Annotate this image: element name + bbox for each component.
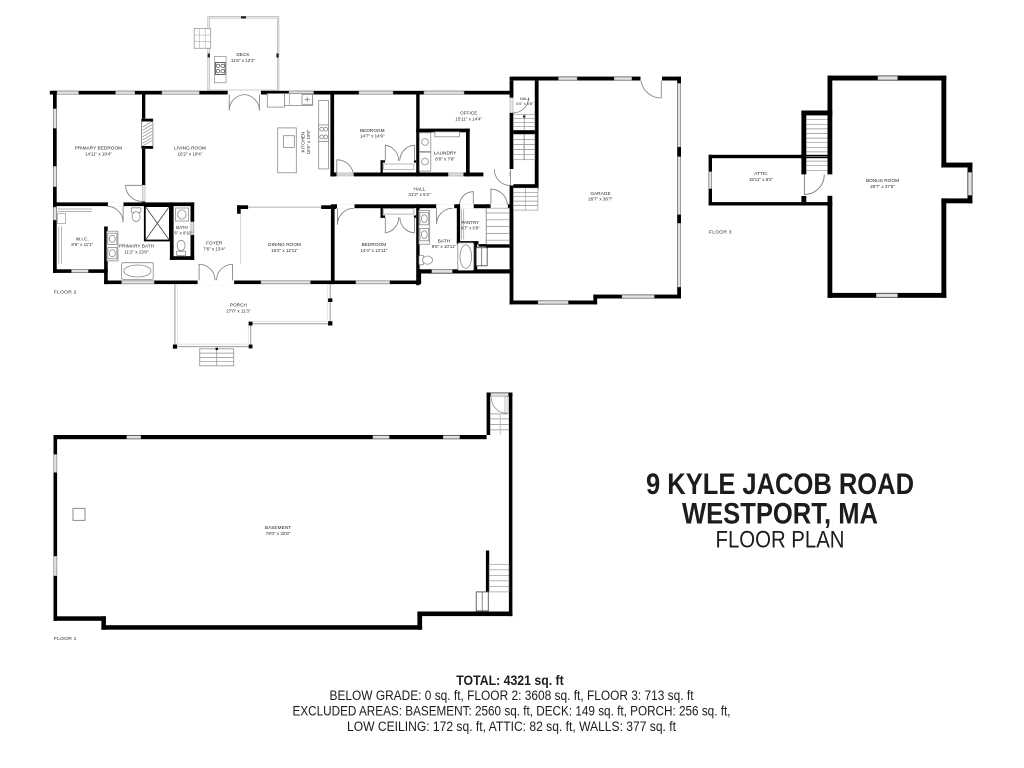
svg-text:14'4" x 12'11": 14'4" x 12'11" (360, 248, 387, 253)
svg-text:TOTAL: 4321 sq. ft: TOTAL: 4321 sq. ft (456, 673, 564, 688)
svg-text:OFFICE: OFFICE (460, 110, 478, 115)
svg-text:LIVING ROOM: LIVING ROOM (174, 146, 206, 151)
svg-text:16'2" x 19'4": 16'2" x 19'4" (178, 152, 203, 157)
svg-text:3'6" x 8'10": 3'6" x 8'10" (171, 230, 193, 235)
svg-text:PORCH: PORCH (230, 303, 247, 308)
svg-text:FLOOR 2: FLOOR 2 (54, 289, 77, 295)
svg-text:14'11" x 19'4": 14'11" x 19'4" (85, 152, 112, 157)
svg-text:PANTRY: PANTRY (461, 220, 479, 225)
svg-text:FLOOR 3: FLOOR 3 (709, 230, 732, 236)
svg-text:BELOW GRADE: 0 sq. ft, FLOOR 2: BELOW GRADE: 0 sq. ft, FLOOR 2: 3608 sq.… (330, 688, 694, 703)
svg-text:28'7" x 37'5": 28'7" x 37'5" (870, 184, 895, 189)
svg-text:FOYER: FOYER (206, 241, 223, 246)
svg-text:LAUNDRY: LAUNDRY (434, 150, 457, 155)
svg-text:11'2" x 13'0": 11'2" x 13'0" (124, 250, 149, 255)
svg-text:7'6" x 13'4": 7'6" x 13'4" (203, 246, 226, 251)
svg-text:BEDROOM: BEDROOM (360, 128, 385, 133)
svg-text:11'6" x 12'2": 11'6" x 12'2" (231, 58, 256, 63)
svg-text:DINING ROOM: DINING ROOM (268, 242, 301, 247)
svg-text:ATTIC: ATTIC (754, 171, 768, 176)
svg-text:FLOOR PLAN: FLOOR PLAN (716, 527, 845, 554)
svg-text:LOW CEILING: 172 sq. ft, ATTIC: LOW CEILING: 172 sq. ft, ATTIC: 82 sq. f… (347, 719, 676, 734)
svg-text:28'7" x 38'7": 28'7" x 38'7" (588, 197, 613, 202)
svg-text:31'2" x 5'2": 31'2" x 5'2" (408, 192, 431, 197)
svg-text:8'6" x 11'1": 8'6" x 11'1" (71, 242, 93, 247)
svg-text:HALL: HALL (414, 186, 426, 191)
svg-text:KITCHEN: KITCHEN (300, 132, 305, 153)
svg-text:16'2" x 12'11": 16'2" x 12'11" (271, 248, 298, 253)
svg-text:BEDROOM: BEDROOM (362, 242, 387, 247)
svg-text:79'0" x 32'8": 79'0" x 32'8" (266, 531, 291, 536)
svg-text:9'6" x 10'11": 9'6" x 10'11" (432, 244, 457, 249)
svg-text:9 KYLE JACOB ROAD: 9 KYLE JACOB ROAD (646, 468, 914, 501)
svg-text:PRIMARY BATH: PRIMARY BATH (119, 244, 154, 249)
svg-text:8'8" x 7'8": 8'8" x 7'8" (435, 156, 455, 161)
svg-text:BASEMENT: BASEMENT (265, 525, 291, 530)
svg-text:W.I.C.: W.I.C. (76, 236, 89, 241)
svg-text:PRIMARY BEDROOM: PRIMARY BEDROOM (75, 146, 123, 151)
svg-text:EXCLUDED AREAS: BASEMENT: 2560: EXCLUDED AREAS: BASEMENT: 2560 sq. ft, D… (293, 704, 731, 719)
svg-text:16'5" x 19'8": 16'5" x 19'8" (306, 129, 311, 154)
svg-text:BATH: BATH (176, 225, 188, 230)
svg-text:GARAGE: GARAGE (590, 191, 610, 196)
svg-text:BONUS ROOM: BONUS ROOM (866, 178, 899, 183)
svg-text:15'11" x 8'2": 15'11" x 8'2" (749, 177, 774, 182)
svg-text:BATH: BATH (438, 238, 450, 243)
svg-text:27'0" x 11'3": 27'0" x 11'3" (226, 308, 251, 313)
svg-text:15'11" x 14'4": 15'11" x 14'4" (455, 116, 482, 121)
svg-text:FLOOR 1: FLOOR 1 (54, 636, 77, 642)
svg-text:14'7" x 14'9": 14'7" x 14'9" (360, 134, 385, 139)
svg-text:DECK: DECK (236, 52, 250, 57)
svg-text:4'7" x 6'8": 4'7" x 6'8" (461, 226, 480, 231)
svg-text:4'0" x 6'8": 4'0" x 6'8" (516, 101, 534, 106)
svg-text:WESTPORT, MA: WESTPORT, MA (682, 498, 878, 531)
